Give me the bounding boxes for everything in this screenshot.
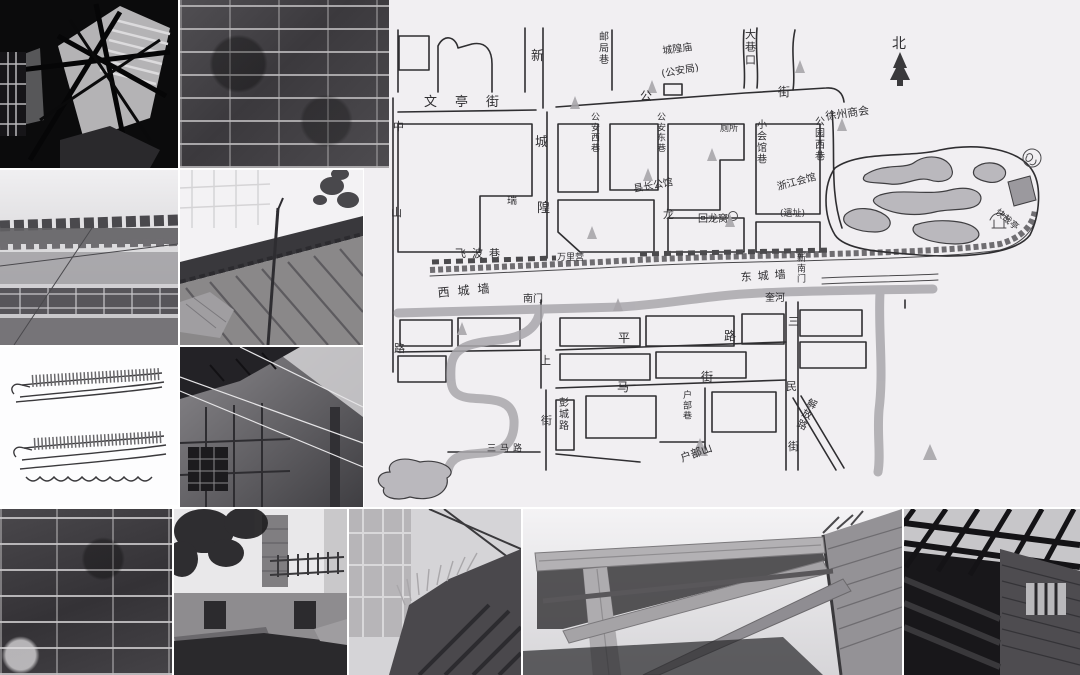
photo-ruined-roof-lattice xyxy=(904,509,1080,675)
map-label: 厕所 xyxy=(720,123,738,134)
map-label: 新 xyxy=(531,48,544,64)
map-label: 彭城路 xyxy=(559,396,569,432)
map-label: 快哉亭 xyxy=(993,206,1021,233)
sketch-eave-profiles xyxy=(0,347,178,505)
map-label: 路 xyxy=(394,342,405,355)
map-label: 奎河 xyxy=(765,291,785,304)
photo-ruined-roof-truss xyxy=(0,0,178,168)
map-label: 南门 xyxy=(523,292,543,305)
map-label: 回龙窝 xyxy=(698,212,728,225)
map-label: 浙江会馆 xyxy=(775,170,817,193)
north-label: 北 xyxy=(892,36,906,52)
map-label: 大巷口 xyxy=(745,27,756,66)
photo-tiled-roof-ridge xyxy=(0,170,178,345)
photo-brick-wall-closeup xyxy=(180,0,389,168)
photo-wooden-house-corner xyxy=(180,347,363,507)
map-label: 公 xyxy=(640,89,652,103)
map-label: 龙 xyxy=(663,208,674,221)
map-label: 万里营 xyxy=(557,251,584,263)
map-label: 邮局巷 xyxy=(599,30,609,66)
map-label: 城 xyxy=(535,135,548,150)
map-label: 城隍庙 xyxy=(662,40,694,57)
map-label: 中 xyxy=(393,120,404,133)
map-sketch: 文亭街公街新城隍邮局巷大巷口城隍庙(公安局)中山路公安西巷公安东巷厕所县长公馆小… xyxy=(364,0,1080,507)
map-label: 公园西巷 xyxy=(815,117,825,163)
photo-brick-wall-dark xyxy=(0,509,172,675)
photo-roof-corner-plants xyxy=(349,509,521,675)
photo-ruined-house xyxy=(174,509,347,675)
map-label: 街 xyxy=(541,413,552,427)
map-label: 路 xyxy=(724,328,736,343)
map-label: 徐州商会 xyxy=(824,103,870,123)
map-label: 新南门 xyxy=(797,252,806,285)
north-arrow-icon xyxy=(890,52,910,86)
map-label: 街 xyxy=(778,85,790,99)
photo-timber-beams xyxy=(523,509,902,675)
map-label: 隍 xyxy=(537,201,550,216)
hand-drawn-map-panel: 文亭街公街新城隍邮局巷大巷口城隍庙(公安局)中山路公安西巷公安东巷厕所县长公馆小… xyxy=(364,0,1080,507)
photo-sloped-tile-roof xyxy=(180,170,363,345)
map-label: 街 xyxy=(788,439,799,453)
map-label: 三马路 xyxy=(487,442,526,454)
map-label: (公安局) xyxy=(660,61,700,80)
map-label: (遗址) xyxy=(780,207,805,219)
collage-poster: 文亭街公街新城隍邮局巷大巷口城隍庙(公安局)中山路公安西巷公安东巷厕所县长公馆小… xyxy=(0,0,1080,675)
map-label: 山 xyxy=(391,206,402,219)
map-label: 户部巷 xyxy=(683,389,692,422)
map-label: 民 xyxy=(786,380,797,393)
map-label: 东城墙 xyxy=(740,266,792,284)
map-label: 公安东巷 xyxy=(657,112,666,154)
map-label: 三 xyxy=(788,315,799,328)
signature-seal-icon xyxy=(1023,149,1041,167)
map-label: 户部山 xyxy=(678,440,714,464)
map-label: 瑞 xyxy=(507,195,517,207)
map-label: 平 xyxy=(618,331,630,345)
map-label: 街 xyxy=(701,370,713,384)
map-label: 西城墙 xyxy=(437,281,498,300)
map-label: 小会馆巷 xyxy=(757,119,767,166)
map-label: 公安西巷 xyxy=(591,112,600,154)
map-label: 马 xyxy=(617,380,629,394)
map-label: 文亭街 xyxy=(424,94,517,110)
map-label: 飞波巷 xyxy=(455,247,506,260)
map-label: 上 xyxy=(540,354,551,367)
